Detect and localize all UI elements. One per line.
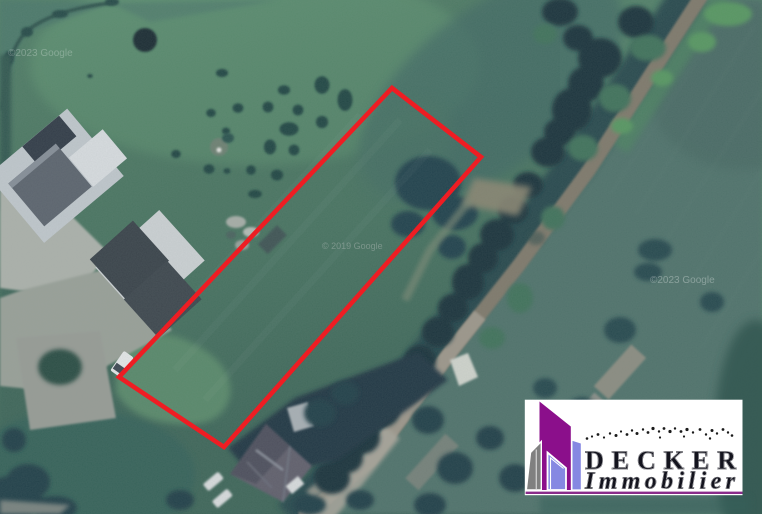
svg-text:© 2019 Google: © 2019 Google bbox=[322, 241, 383, 251]
svg-text:©2023 Google: ©2023 Google bbox=[8, 48, 73, 59]
svg-text:©2023 Google: ©2023 Google bbox=[650, 275, 715, 286]
